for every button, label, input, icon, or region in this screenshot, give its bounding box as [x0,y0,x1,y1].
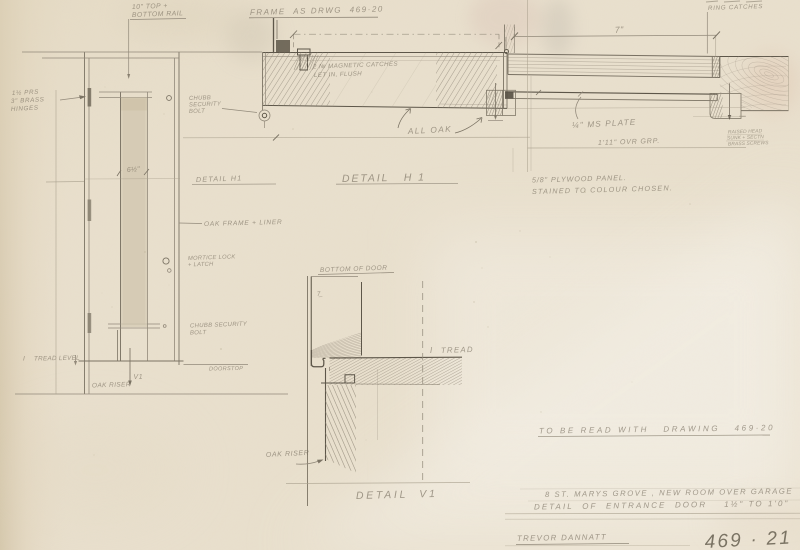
svg-text:DETAIL V1: DETAIL V1 [356,488,438,502]
svg-text:SECURITY: SECURITY [189,101,222,108]
svg-text:6½": 6½" [127,165,141,174]
svg-text:DOORSTOP: DOORSTOP [209,366,243,373]
svg-text:I: I [430,346,433,355]
svg-text:+ LATCH: + LATCH [188,262,214,269]
svg-text:I: I [23,356,25,363]
svg-text:7": 7" [614,24,624,35]
svg-text:469 · 21: 469 · 21 [704,527,792,550]
svg-text:DETAIL H 1: DETAIL H 1 [342,172,426,185]
svg-text:10" TOP +: 10" TOP + [132,3,168,11]
svg-text:HINGES: HINGES [11,105,39,113]
svg-text:TREVOR DANNATT: TREVOR DANNATT [517,532,607,543]
svg-text:TREAD LEVEL: TREAD LEVEL [34,355,80,363]
svg-text:BOLT: BOLT [189,108,205,115]
svg-text:OAK RISER: OAK RISER [92,381,131,389]
svg-text:V1: V1 [133,374,143,381]
svg-text:TREAD: TREAD [441,345,474,355]
svg-text:1½ PRS: 1½ PRS [12,88,40,97]
svg-text:BOLT: BOLT [190,330,208,337]
svg-text:DETAIL H1: DETAIL H1 [196,173,243,184]
